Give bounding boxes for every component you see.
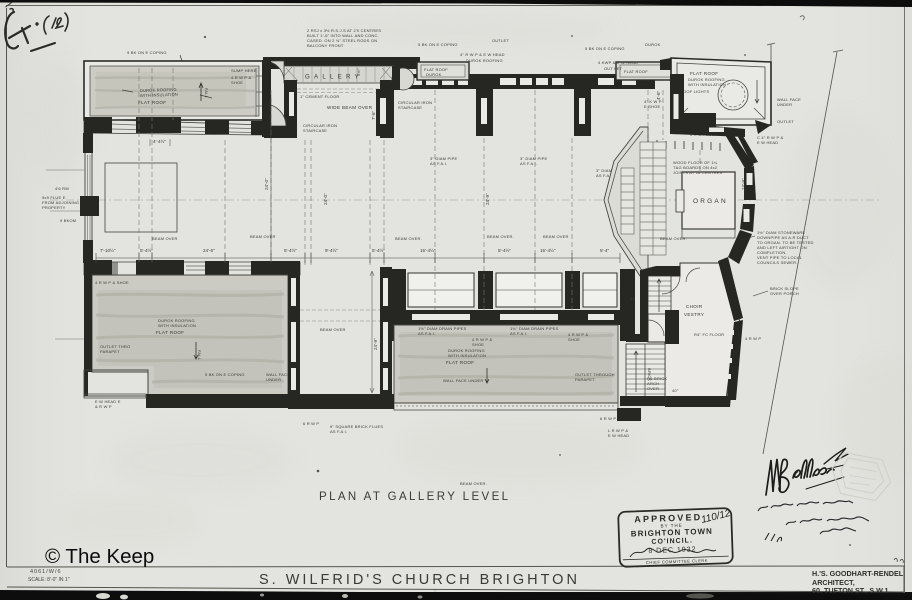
svg-text:PROPERTY: PROPERTY (42, 205, 66, 210)
svg-text:STAIRCASE: STAIRCASE (398, 105, 422, 110)
svg-text:SCALE: 8'-0" IN 1": SCALE: 8'-0" IN 1" (28, 577, 70, 583)
svg-text:4" R W P & E W HEAD: 4" R W P & E W HEAD (460, 52, 505, 57)
svg-text:AS F.A.I.: AS F.A.I. (510, 331, 527, 336)
svg-text:SHOE: SHOE (472, 342, 484, 347)
svg-text:FLAT ROOF: FLAT ROOF (624, 69, 648, 74)
svg-text:24'-0": 24'-0" (323, 193, 328, 205)
svg-text:JOISTS AT 16 CENTRES: JOISTS AT 16 CENTRES (673, 170, 723, 175)
svg-text:AS F.A.I.: AS F.A.I. (430, 161, 447, 166)
svg-text:BEAM OVER.: BEAM OVER. (460, 481, 487, 486)
svg-text:E SHOE: E SHOE (644, 104, 660, 109)
svg-text:CHOIR: CHOIR (686, 304, 703, 309)
svg-text:11: 11 (630, 296, 635, 301)
svg-text:ORGAN: ORGAN (693, 198, 728, 205)
svg-text:7'-10½": 7'-10½" (100, 247, 116, 253)
svg-text:BEAM OVER: BEAM OVER (543, 234, 569, 239)
svg-text:5'-4½": 5'-4½" (140, 247, 153, 253)
svg-text:OVER PORCH: OVER PORCH (770, 291, 799, 296)
svg-text:BEAM OVER: BEAM OVER (250, 234, 276, 239)
svg-text:24'-6": 24'-6" (203, 248, 215, 253)
svg-text:WITH INSULATION: WITH INSULATION (158, 323, 196, 328)
svg-text:5½": 5½" (356, 68, 361, 76)
svg-text:R4" FC FLOOR: R4" FC FLOOR (694, 332, 724, 337)
svg-text:CO'INCIL.: CO'INCIL. (651, 537, 693, 545)
svg-text:4 R W P: 4 R W P (745, 336, 761, 341)
svg-text:6 R W P: 6 R W P (600, 416, 616, 421)
svg-text:FLAT ROOF: FLAT ROOF (156, 330, 184, 335)
svg-text:BEAM OVER.: BEAM OVER. (395, 236, 422, 241)
svg-text:5'-4": 5'-4" (600, 248, 610, 253)
svg-text:24'-9": 24'-9" (741, 178, 746, 190)
svg-text:S. WILFRID'S CHURCH BR: S. WILFRID'S CHURCH BRIGHTON (259, 572, 580, 588)
svg-text:5'-4½": 5'-4½" (498, 247, 511, 253)
svg-text:7'-6": 7'-6" (371, 110, 376, 120)
svg-text:H.'S. GOODHART-RENDEL: H.'S. GOODHART-RENDEL (812, 569, 904, 578)
svg-text:E W HEAD: E W HEAD (608, 433, 629, 438)
svg-text:COUNCILS SEWER.: COUNCILS SEWER. (757, 260, 798, 265)
svg-text:BEAM OVER.: BEAM OVER. (660, 236, 687, 241)
svg-text:FALL: FALL (204, 88, 209, 99)
svg-text:DUROK ROOFING: DUROK ROOFING (466, 58, 503, 63)
svg-text:BEAM OVER: BEAM OVER (320, 327, 346, 332)
svg-text:OVER: OVER (647, 386, 659, 391)
svg-text:4'6 RW: 4'6 RW (55, 186, 69, 191)
svg-text:15'-4½": 15'-4½" (420, 247, 436, 253)
svg-text:4'-4½": 4'-4½" (153, 138, 166, 144)
svg-text:9 BKOM: 9 BKOM (60, 218, 76, 223)
svg-text:E W HEAD: E W HEAD (757, 140, 778, 145)
svg-text:OUTLET: OUTLET (492, 38, 509, 43)
svg-text:PARAPET: PARAPET (100, 349, 120, 354)
svg-text:15'-4½": 15'-4½" (540, 247, 556, 253)
svg-text:24'-9": 24'-9" (485, 193, 490, 205)
svg-text:BEAM OVER: BEAM OVER (152, 236, 178, 241)
svg-text:BALCONY FRONT: BALCONY FRONT (307, 43, 344, 48)
svg-text:24'-9": 24'-9" (373, 338, 378, 350)
svg-text:OUT LET: OUT LET (604, 66, 623, 71)
svg-text:PARAPET: PARAPET (575, 377, 595, 382)
svg-text:40°: 40° (672, 388, 679, 393)
svg-text:& R W P: & R W P (95, 404, 112, 409)
svg-text:5 BK ON E COPING: 5 BK ON E COPING (585, 46, 625, 51)
svg-text:SHOE: SHOE (231, 80, 243, 85)
svg-text:BEAM OVER.: BEAM OVER. (487, 234, 514, 239)
svg-text:5'-4½": 5'-4½" (284, 247, 297, 253)
svg-text:9 BK ON E COPING: 9 BK ON E COPING (127, 50, 167, 55)
svg-text:4 KWP & E W HEAD: 4 KWP & E W HEAD (598, 60, 638, 65)
svg-text:5 BK ON E COPING: 5 BK ON E COPING (418, 42, 458, 47)
svg-text:WITH INSULATION: WITH INSULATION (448, 353, 486, 358)
svg-text:UNDER: UNDER (777, 102, 792, 107)
svg-text:SHOE: SHOE (568, 337, 580, 342)
svg-text:6 R W P: 6 R W P (303, 421, 319, 426)
svg-text:GALLERY: GALLERY (305, 74, 363, 81)
svg-text:5'-4½": 5'-4½" (372, 247, 385, 253)
svg-text:VESTRY: VESTRY (684, 312, 704, 317)
svg-text:4'-6": 4'-6" (656, 90, 661, 100)
svg-text:FLAT ROOF: FLAT ROOF (446, 360, 474, 365)
svg-text:DUROK: DUROK (645, 42, 661, 47)
svg-text:4 R W P & SHOE: 4 R W P & SHOE (95, 280, 129, 285)
svg-text:FALL: FALL (197, 350, 202, 361)
svg-text:60. TUFTON ST., S.W.1.: 60. TUFTON ST., S.W.1. (812, 586, 891, 595)
svg-text:AS F.A.I.: AS F.A.I. (418, 331, 435, 336)
svg-text:4061/W/6: 4061/W/6 (30, 569, 62, 575)
svg-text:1" CEMENT FLOOR: 1" CEMENT FLOOR (300, 94, 339, 99)
svg-text:9'-4½": 9'-4½" (325, 247, 338, 253)
svg-text:PLAN AT GALLERY LEVEL: PLAN AT GALLERY LEVEL (319, 491, 510, 503)
svg-text:FLAT ROOF: FLAT ROOF (690, 71, 718, 76)
svg-text:© The Keep: © The Keep (45, 545, 154, 568)
svg-text:STAIRCASE: STAIRCASE (303, 128, 327, 133)
svg-text:ROOF LIGHTS: ROOF LIGHTS (680, 89, 709, 94)
svg-text:UNDER: UNDER (266, 377, 281, 382)
svg-text:24'-0": 24'-0" (264, 178, 269, 190)
svg-text:DUROK: DUROK (426, 72, 442, 77)
svg-text:OUTLET: OUTLET (777, 119, 794, 124)
svg-text:5 BK ON E COPING: 5 BK ON E COPING (205, 372, 245, 377)
svg-text:SUMP HERE: SUMP HERE (231, 68, 257, 73)
svg-text:WALL FACE UNDER: WALL FACE UNDER (443, 378, 484, 383)
svg-text:AS F.A.I.: AS F.A.I. (330, 429, 347, 434)
svg-text:WIDE BEAM OVER: WIDE BEAM OVER (327, 105, 373, 110)
